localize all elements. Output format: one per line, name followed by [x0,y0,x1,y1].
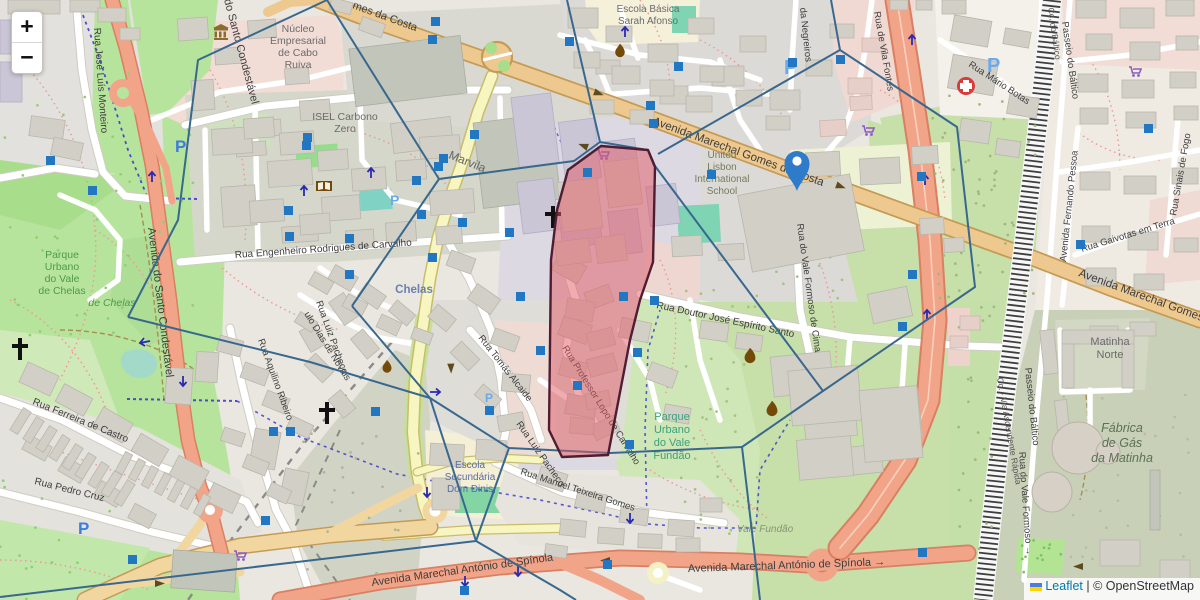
svg-text:P: P [390,192,399,208]
svg-text:Fábrica: Fábrica [1101,421,1143,435]
svg-text:Sarah Afonso: Sarah Afonso [618,16,678,27]
svg-text:Empresarial: Empresarial [270,35,326,47]
svg-text:do Vale: do Vale [654,437,691,449]
svg-text:Escola: Escola [455,460,485,471]
svg-text:Matinha: Matinha [1090,336,1130,348]
svg-text:Dom Dinis: Dom Dinis [447,484,493,495]
svg-text:de Chelas: de Chelas [88,297,136,309]
svg-text:de Chelas: de Chelas [38,285,85,297]
svg-text:P: P [485,391,493,405]
svg-text:International: International [694,174,749,185]
svg-text:ISEL Carbono: ISEL Carbono [312,111,378,123]
svg-text:Chelas: Chelas [395,284,433,296]
svg-text:P: P [78,519,89,538]
svg-text:Norte: Norte [1097,349,1124,361]
svg-text:da Matinha: da Matinha [1091,451,1153,465]
svg-text:Secundária: Secundária [445,472,496,483]
svg-text:Urbano: Urbano [654,424,690,436]
svg-text:Ruiva: Ruiva [285,59,312,71]
svg-text:United: United [708,150,737,161]
svg-text:P: P [175,137,186,156]
svg-text:School: School [707,186,738,197]
svg-text:Escola Básica: Escola Básica [617,4,680,15]
svg-text:Parque: Parque [45,249,79,261]
svg-text:Zero: Zero [334,123,356,135]
svg-text:Urbano: Urbano [45,261,80,273]
svg-text:Núcleo: Núcleo [282,23,315,35]
svg-text:do Vale: do Vale [45,273,80,285]
svg-text:Parque: Parque [654,411,689,423]
svg-text:de Gás: de Gás [1102,436,1142,450]
svg-text:Fundão: Fundão [653,450,690,462]
svg-text:Vale Fundão: Vale Fundão [737,524,794,535]
svg-text:de Cabo: de Cabo [278,47,318,59]
